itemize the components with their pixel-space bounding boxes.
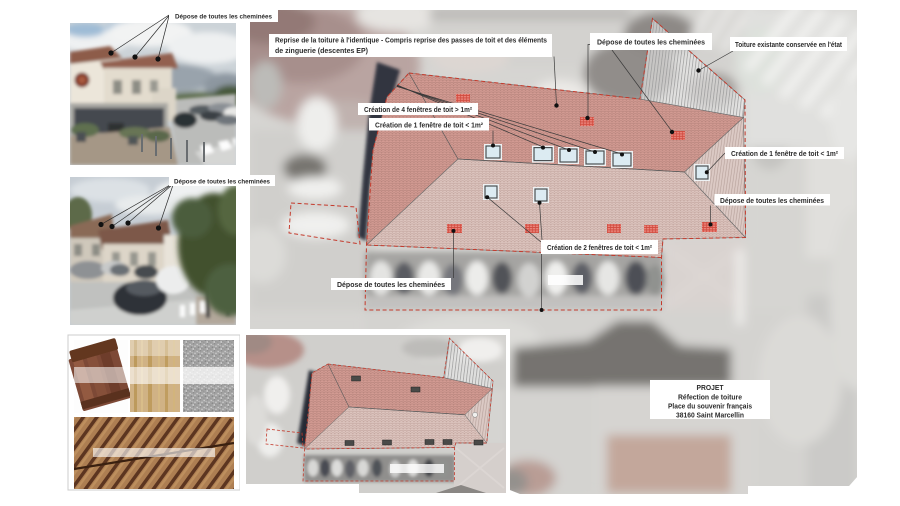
svg-text:Dépose de toutes les cheminées: Dépose de toutes les cheminées	[175, 14, 272, 21]
svg-text:Création de 1 fenêtre de toit: Création de 1 fenêtre de toit < 1m²	[375, 123, 484, 130]
svg-text:Dépose de toutes les cheminées: Dépose de toutes les cheminées	[174, 178, 270, 185]
svg-text:Toiture existante conservée en: Toiture existante conservée en l'état	[735, 42, 843, 49]
svg-text:Dépose de toutes les cheminées: Dépose de toutes les cheminées	[337, 282, 445, 289]
svg-text:Création de 1 fenêtre de toit: Création de 1 fenêtre de toit < 1m²	[731, 151, 839, 158]
svg-text:de zinguerie (descentes EP): de zinguerie (descentes EP)	[275, 48, 368, 55]
svg-text:Place du souvenir français: Place du souvenir français	[668, 404, 752, 411]
svg-text:Dépose de toutes les cheminées: Dépose de toutes les cheminées	[720, 198, 824, 205]
svg-text:Reprise de la toiture à l'iden: Reprise de la toiture à l'identique - Co…	[275, 38, 547, 45]
svg-text:38160 Saint Marcellin: 38160 Saint Marcellin	[676, 413, 744, 420]
svg-text:Création de 2 fenêtres de toit: Création de 2 fenêtres de toit < 1m²	[547, 245, 653, 252]
svg-text:Réfection de toiture: Réfection de toiture	[678, 395, 742, 402]
svg-text:PROJET: PROJET	[697, 385, 725, 392]
svg-text:Dépose de toutes les cheminées: Dépose de toutes les cheminées	[597, 40, 705, 47]
svg-text:Création de 4 fenêtres de toit: Création de 4 fenêtres de toit > 1m²	[364, 107, 473, 114]
